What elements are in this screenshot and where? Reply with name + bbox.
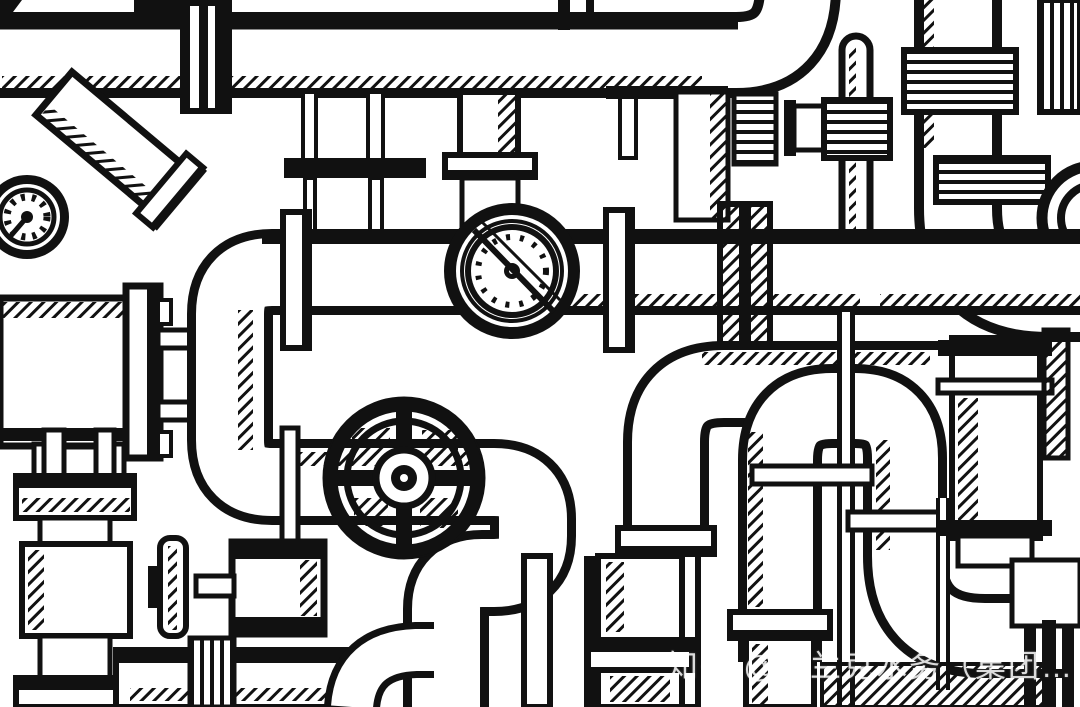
spoked-handwheel-valve [324,398,484,558]
flange-pair [720,204,770,356]
large-round-flow-meter [450,209,574,333]
pipes-illustration: 知乎 @富兰克水务（集团… [0,0,1080,707]
right-mid-pipe-column [938,330,1068,566]
flange-ring [606,210,633,350]
flange-joint [180,0,232,114]
pipes-line-art [0,0,1080,707]
flange-ring [283,212,310,348]
